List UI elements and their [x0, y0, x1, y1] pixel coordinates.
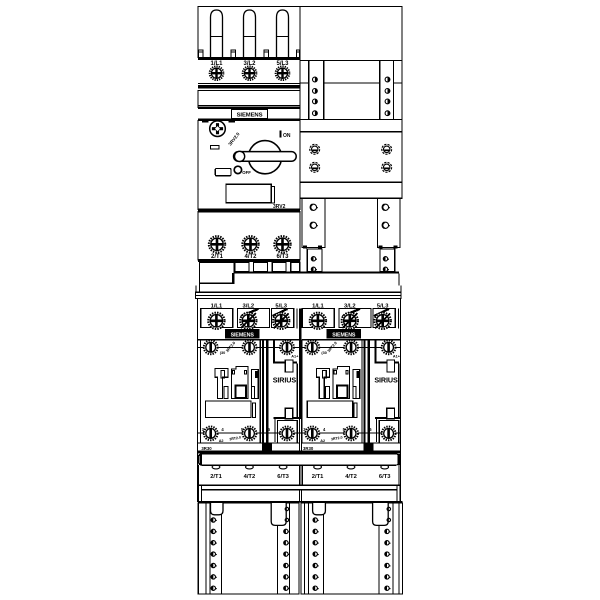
- svg-text:SIEMENS: SIEMENS: [231, 332, 255, 338]
- svg-text:3RV2.0: 3RV2.0: [227, 131, 241, 146]
- svg-text:SIRIUS: SIRIUS: [273, 375, 297, 384]
- svg-text:4: 4: [323, 427, 326, 432]
- svg-text:3RV2: 3RV2: [273, 204, 286, 210]
- svg-text:A2: A2: [320, 439, 325, 443]
- svg-text:ON: ON: [283, 133, 291, 139]
- svg-text:2/T1: 2/T1: [211, 254, 224, 260]
- svg-text:4: 4: [221, 427, 224, 432]
- svg-text:SIEMENS: SIEMENS: [332, 332, 356, 338]
- svg-text:A1+: A1+: [291, 355, 299, 359]
- svg-text:2/T1: 2/T1: [312, 474, 324, 480]
- svg-text:6: 6: [369, 427, 372, 432]
- svg-text:(30: (30: [321, 351, 327, 355]
- svg-text:SIEMENS: SIEMENS: [237, 113, 263, 119]
- svg-text:6/T3: 6/T3: [379, 474, 391, 480]
- svg-text:3R30: 3R30: [201, 446, 212, 451]
- svg-text:3RT2.0: 3RT2.0: [331, 435, 343, 441]
- svg-text:(30: (30: [220, 351, 226, 355]
- svg-text:3R30: 3R30: [303, 446, 314, 451]
- svg-text:6/T3: 6/T3: [276, 254, 289, 260]
- svg-text:OFF: OFF: [242, 170, 251, 175]
- svg-text:6: 6: [268, 427, 271, 432]
- svg-text:4/T2: 4/T2: [244, 254, 257, 260]
- svg-text:2/T1: 2/T1: [210, 474, 222, 480]
- svg-text:3RT2.0: 3RT2.0: [229, 435, 241, 441]
- svg-text:6/T3: 6/T3: [277, 474, 289, 480]
- svg-text:A1+: A1+: [393, 355, 401, 359]
- svg-text:SIRIUS: SIRIUS: [374, 375, 398, 384]
- svg-text:4/T2: 4/T2: [345, 474, 357, 480]
- svg-text:4/T2: 4/T2: [244, 474, 256, 480]
- svg-text:A2: A2: [219, 439, 224, 443]
